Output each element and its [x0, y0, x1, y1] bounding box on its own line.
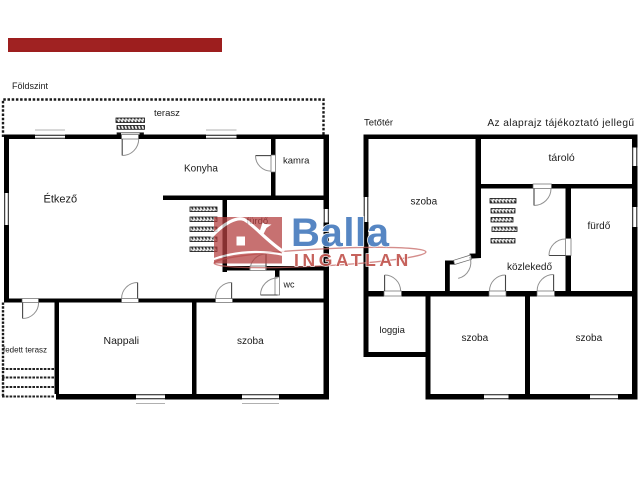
- svg-text:Földszint: Földszint: [12, 81, 49, 91]
- svg-text:kamra: kamra: [283, 156, 310, 167]
- svg-text:wc: wc: [283, 280, 295, 290]
- svg-text:Konyha: Konyha: [184, 164, 218, 175]
- svg-text:szoba: szoba: [576, 333, 603, 344]
- svg-text:INGATLAN: INGATLAN: [294, 250, 412, 270]
- svg-text:szoba: szoba: [462, 333, 489, 344]
- svg-text:Balla: Balla: [291, 211, 390, 255]
- svg-text:fürdő: fürdő: [588, 221, 611, 232]
- svg-text:Nappali: Nappali: [104, 335, 140, 347]
- svg-text:Az alaprajz tájékoztató jelleg: Az alaprajz tájékoztató jellegű: [487, 118, 634, 129]
- svg-text:loggia: loggia: [380, 325, 406, 336]
- svg-text:terasz: terasz: [154, 108, 180, 119]
- svg-text:fedett terasz: fedett terasz: [3, 346, 47, 355]
- svg-text:tároló: tároló: [549, 152, 575, 164]
- svg-text:Étkező: Étkező: [44, 193, 78, 206]
- svg-text:szoba: szoba: [411, 197, 438, 208]
- svg-text:közlekedő: közlekedő: [507, 262, 552, 273]
- svg-text:szoba: szoba: [237, 336, 264, 347]
- svg-text:Tetőtér: Tetőtér: [364, 118, 393, 129]
